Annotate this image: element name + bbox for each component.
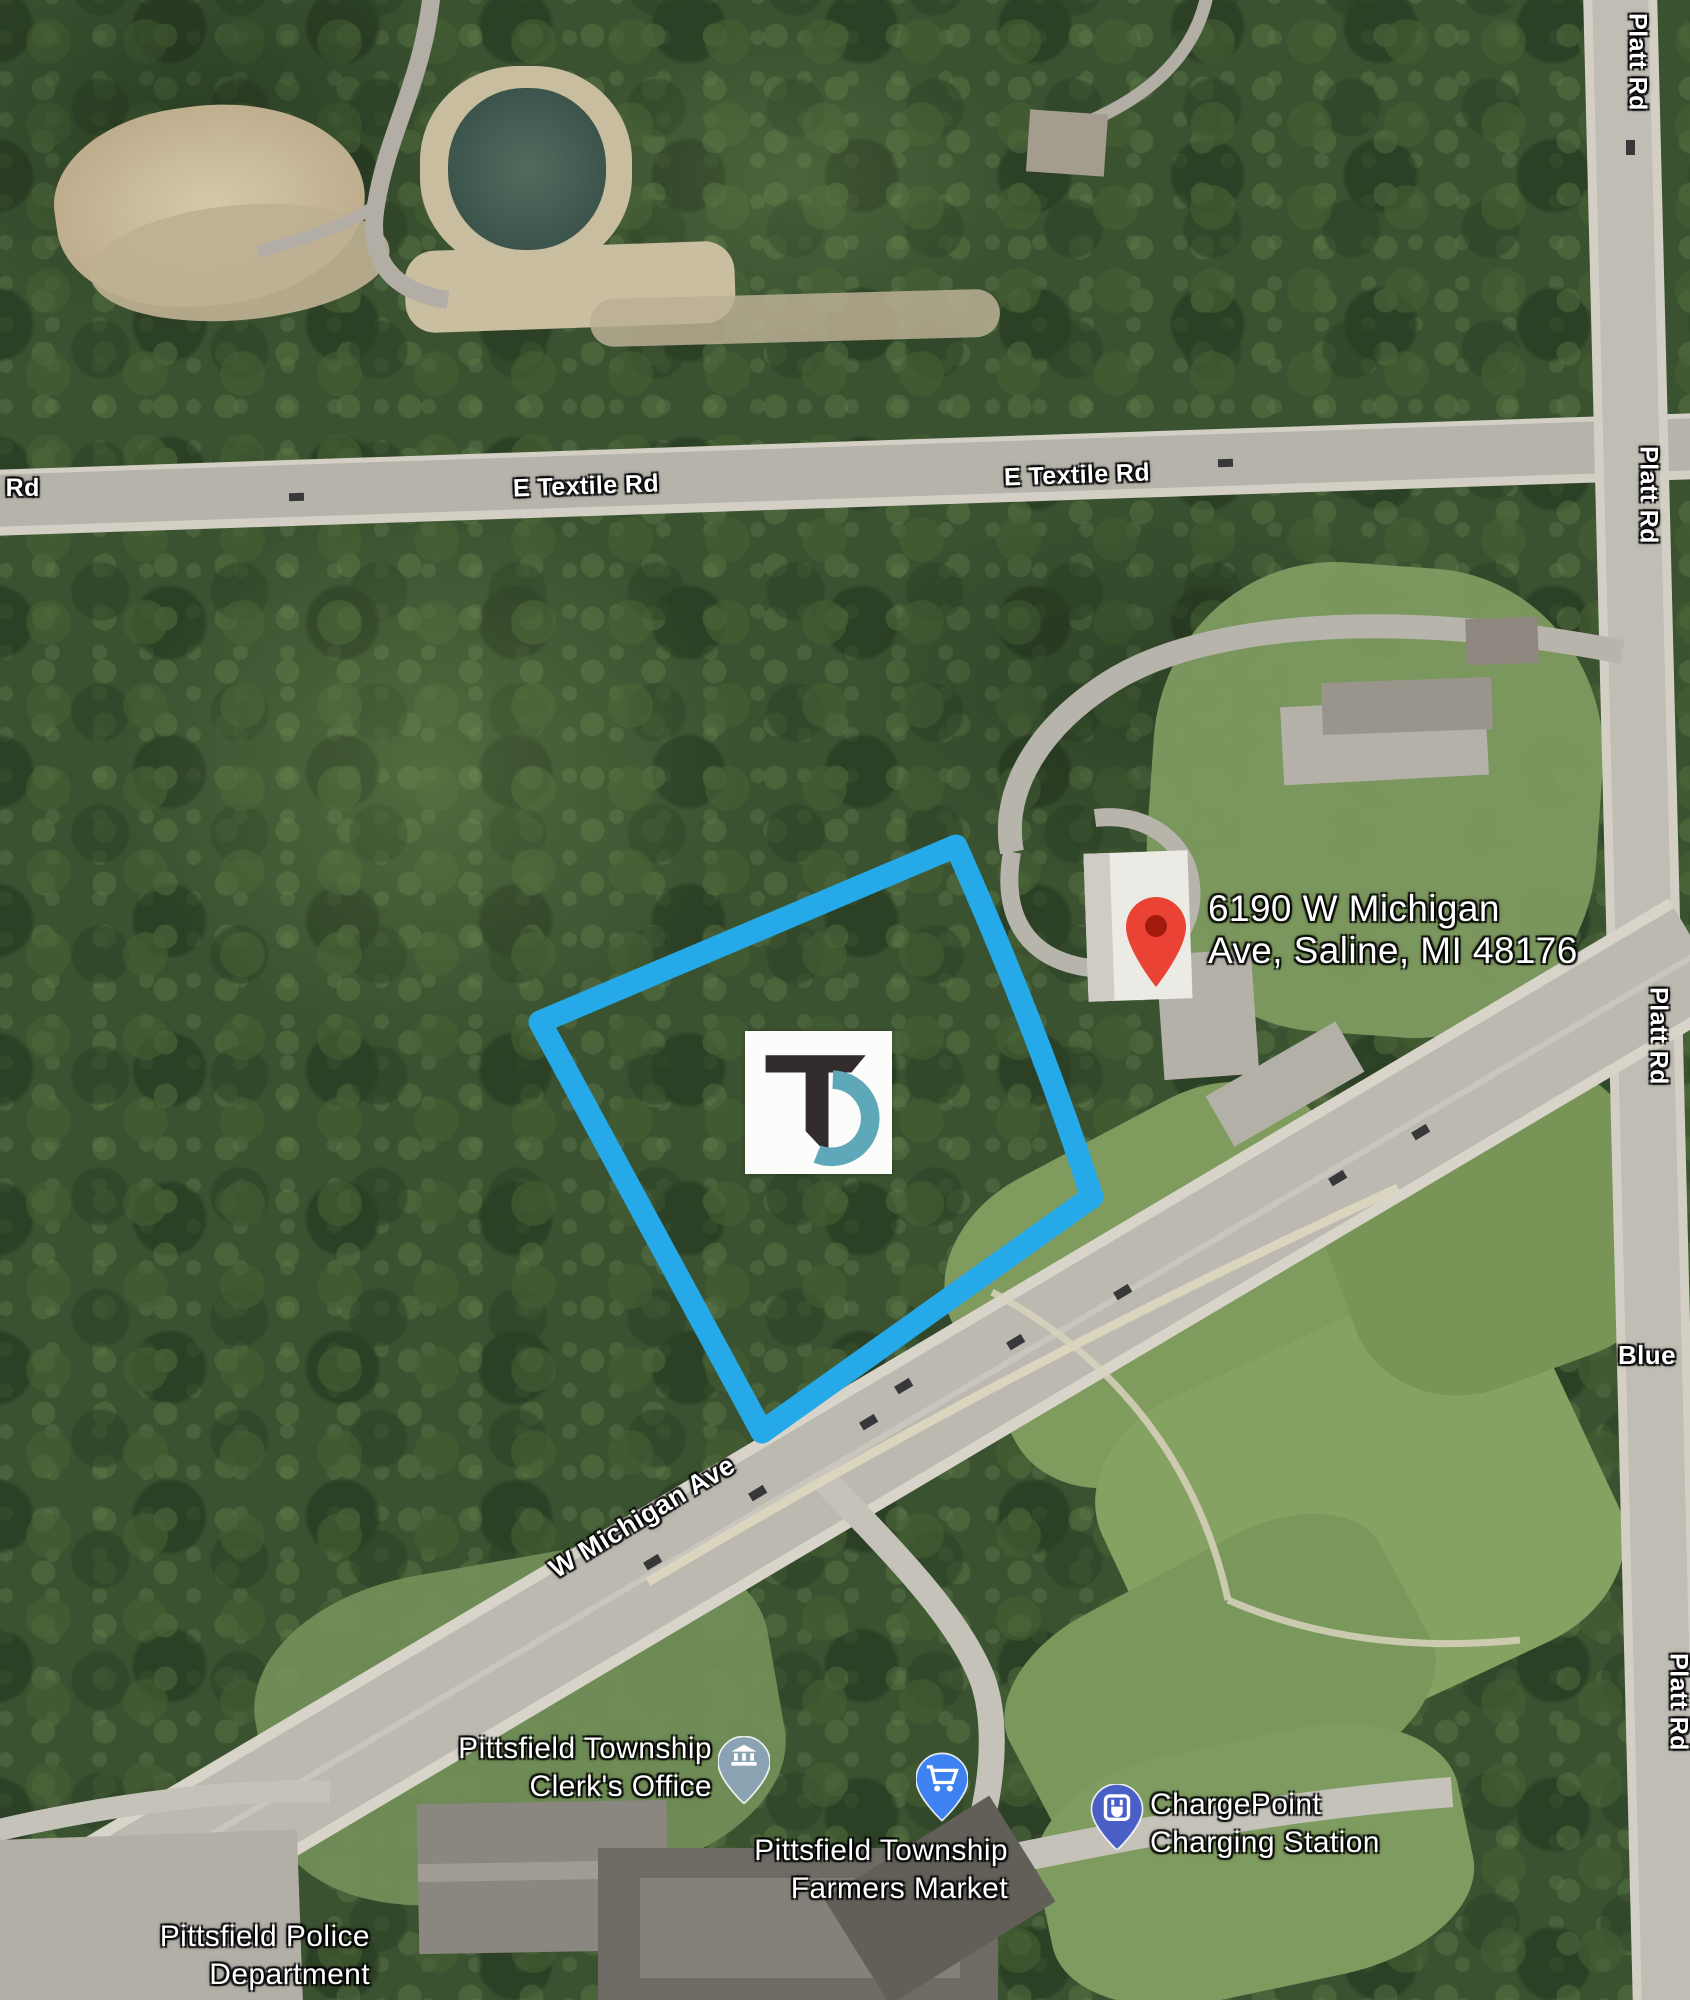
poi-clerk-line2: Clerk's Office bbox=[458, 1768, 712, 1806]
poi-farmers-line2: Farmers Market bbox=[754, 1870, 1008, 1908]
poi-farmers-line1: Pittsfield Township bbox=[754, 1832, 1008, 1870]
red-location-pin-icon[interactable] bbox=[1126, 896, 1186, 988]
poi-police-line2: Department bbox=[160, 1956, 370, 1994]
poi-label-chargepoint[interactable]: ChargePoint Charging Station bbox=[1150, 1786, 1380, 1862]
road-label-platt-4: Platt Rd bbox=[1664, 1653, 1690, 1751]
road-label-platt-1: Platt Rd bbox=[1623, 13, 1652, 111]
td-logo-t bbox=[766, 1055, 866, 1155]
marker-address-line2: Ave, Saline, MI 48176 bbox=[1208, 930, 1578, 972]
marker-address-label: 6190 W Michigan Ave, Saline, MI 48176 bbox=[1208, 888, 1578, 972]
poi-label-farmers-market[interactable]: Pittsfield Township Farmers Market bbox=[754, 1832, 1008, 1908]
road-label-e-textile-1: E Textile Rd bbox=[513, 469, 660, 503]
marker-address-line1: 6190 W Michigan bbox=[1208, 888, 1578, 930]
road-label-e-textile-2: E Textile Rd bbox=[1004, 458, 1151, 492]
road-label-platt-3: Platt Rd bbox=[1644, 987, 1673, 1085]
poi-police-line1: Pittsfield Police bbox=[160, 1918, 370, 1956]
road-label-platt-2: Platt Rd bbox=[1634, 446, 1663, 544]
government-building-pin-icon[interactable] bbox=[718, 1736, 770, 1804]
road-label-left-partial: e Rd bbox=[0, 474, 40, 503]
poi-clerk-line1: Pittsfield Township bbox=[458, 1730, 712, 1768]
road-label-blue: Blue bbox=[1618, 1340, 1676, 1371]
poi-label-police[interactable]: Pittsfield Police Department bbox=[160, 1918, 370, 1994]
poi-label-clerk-office[interactable]: Pittsfield Township Clerk's Office bbox=[458, 1730, 712, 1806]
poi-chargepoint-line1: ChargePoint bbox=[1150, 1786, 1380, 1824]
shopping-cart-pin-icon[interactable] bbox=[916, 1752, 968, 1822]
td-logo bbox=[745, 1031, 892, 1174]
satellite-map-canvas[interactable]: 6190 W Michigan Ave, Saline, MI 48176 E … bbox=[0, 0, 1690, 2000]
poi-chargepoint-line2: Charging Station bbox=[1150, 1824, 1380, 1862]
parcel-layer bbox=[0, 0, 1690, 2000]
ev-charger-pin-icon[interactable] bbox=[1090, 1784, 1144, 1850]
